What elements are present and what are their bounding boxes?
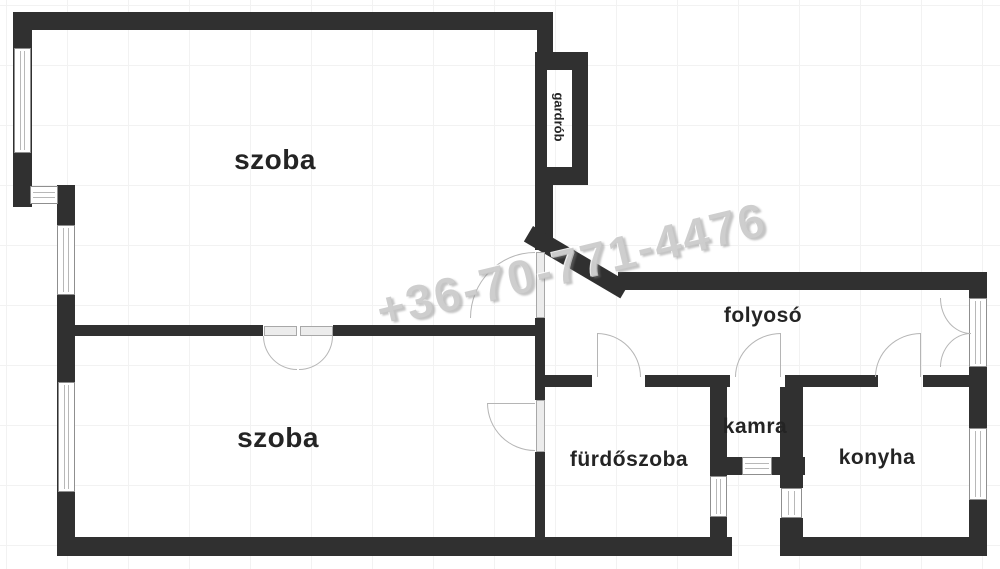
wall-hallway-bottom-2 [645, 375, 730, 387]
window-symbol [969, 428, 987, 500]
wall-hallway-bottom-3 [785, 375, 878, 387]
window-swing-arc [940, 333, 971, 367]
window-symbol [30, 186, 58, 204]
wall-gardrob-right [572, 52, 588, 185]
window-swing-arc [940, 298, 971, 334]
wall-hallway-bottom-4 [923, 375, 970, 387]
wall-pantry-bottom-left [710, 457, 742, 475]
room-label-folyoso: folyosó [724, 304, 802, 328]
door-leaf [264, 326, 297, 336]
wall-bottom-left [57, 537, 732, 556]
room-label-szoba-bottom: szoba [237, 422, 319, 454]
wall-hallway-bottom-1 [545, 375, 592, 387]
window-symbol [969, 298, 987, 367]
wall-shaft-right-lower [780, 518, 803, 556]
door-leaf [300, 326, 333, 336]
room-label-konyha: konyha [839, 446, 916, 470]
wall-center-upper [535, 318, 545, 400]
door-swing-arc [875, 333, 921, 377]
wall-divider-right [333, 325, 545, 336]
window-symbol [14, 48, 31, 153]
floor-plan: szoba szoba gardrób folyosó fürdőszoba k… [0, 0, 1000, 569]
room-label-szoba-top: szoba [234, 144, 316, 176]
wall-divider-left [75, 325, 263, 336]
wall-right-2 [969, 367, 987, 428]
wall-hallway-top [618, 272, 987, 290]
door-swing-arc [487, 403, 535, 451]
door-swing-arc [299, 336, 333, 370]
watermark-phone-number: +36-70-771-4476 [371, 193, 772, 340]
door-swing-arc [735, 333, 781, 377]
window-symbol [742, 457, 772, 475]
wall-right-1 [969, 272, 987, 298]
window-symbol [710, 476, 727, 517]
door-swing-arc [597, 333, 641, 377]
wall-shaft-left-lower [710, 517, 727, 556]
wall-shaft-right-upper [780, 457, 803, 488]
room-label-gardrob: gardrób [552, 92, 567, 141]
wall-gardrob-left [535, 70, 547, 167]
wall-top [13, 12, 553, 30]
wall-gardrob-bottom [535, 167, 588, 185]
room-label-kamra: kamra [723, 415, 787, 439]
door-swing-arc [263, 336, 297, 370]
window-symbol [58, 382, 75, 492]
room-label-furdoszoba: fürdőszoba [570, 448, 688, 472]
window-symbol [57, 225, 75, 295]
wall-bottom-right [788, 537, 987, 556]
window-symbol [781, 488, 802, 518]
door-leaf [536, 400, 545, 452]
